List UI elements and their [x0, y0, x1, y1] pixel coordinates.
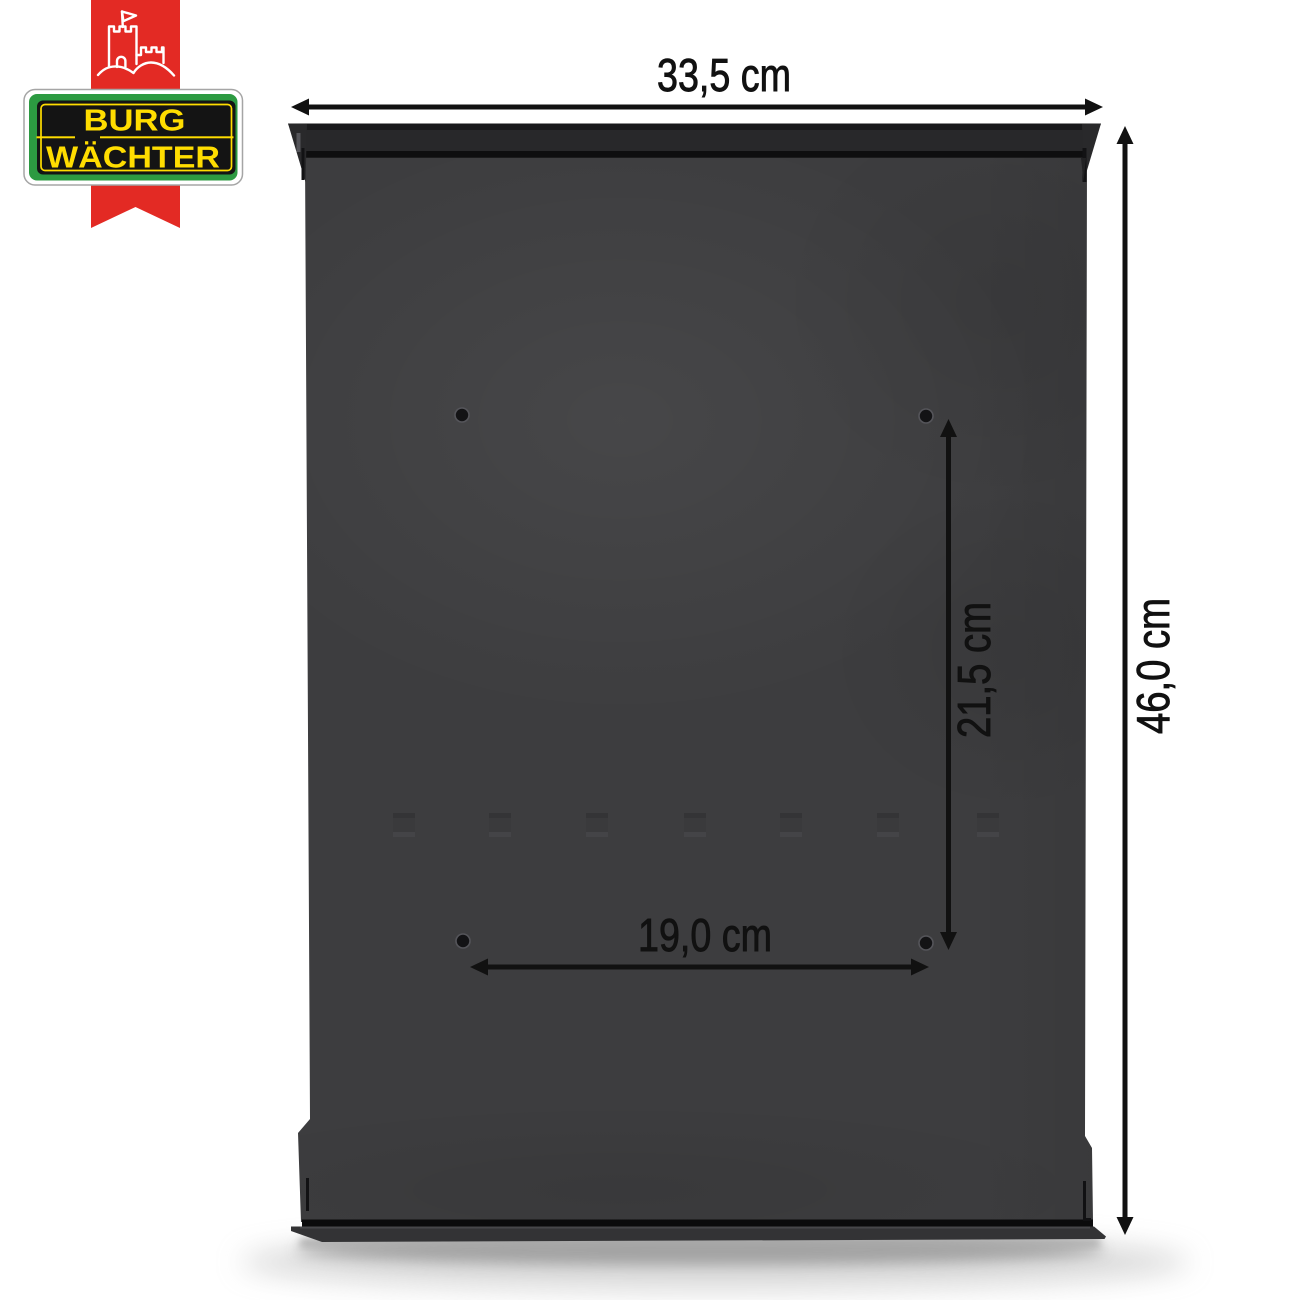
svg-text:33,5 cm: 33,5 cm — [657, 49, 791, 101]
svg-text:WÄCHTER: WÄCHTER — [46, 139, 220, 174]
svg-text:BURG: BURG — [84, 102, 186, 137]
svg-text:46,0 cm: 46,0 cm — [1127, 598, 1179, 734]
svg-text:19,0 cm: 19,0 cm — [638, 909, 772, 961]
svg-text:21,5 cm: 21,5 cm — [948, 602, 1000, 738]
